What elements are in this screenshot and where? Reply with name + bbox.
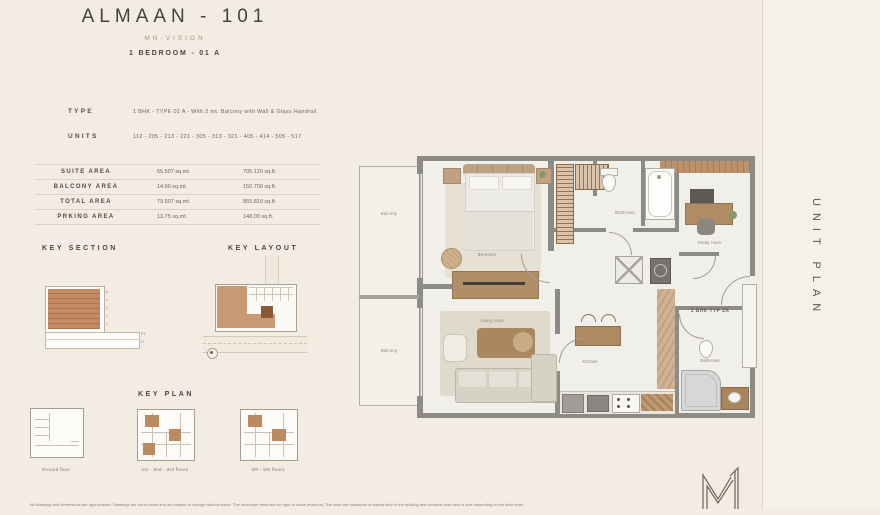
bed-pillow [502, 176, 532, 190]
floor-label: 2 [106, 312, 108, 320]
nightstand-left [443, 168, 461, 184]
key-layout-map [203, 256, 307, 364]
key-plan-heading: KEY PLAN [138, 391, 194, 398]
stove [612, 394, 640, 413]
key-plan-upper-floors [240, 409, 298, 461]
area-row-label: PRKING AREA [35, 214, 137, 220]
key-section-podium [45, 332, 140, 349]
floor-label: 4 [106, 296, 108, 304]
coffee-table-tray [513, 332, 533, 352]
road-centerline [203, 343, 307, 344]
brand-subtitle: MN-VISION [50, 35, 300, 42]
bedroom-label: Bedroom [462, 252, 512, 257]
key-plan-caption: Ground floor [20, 467, 92, 472]
basket [441, 248, 462, 269]
key-section-floor-labels: 5 4 3 2 1 [106, 288, 108, 328]
podium-label: G [141, 340, 144, 344]
area-sqft: 148.00 sq.ft. [243, 214, 320, 220]
table-row: SUITE AREA 65.507 sq.mt. 705.120 sq.ft. [35, 164, 320, 179]
sofa-cushion [489, 371, 516, 387]
fridge [562, 394, 584, 413]
floor-label: 5 [106, 288, 108, 296]
study-room-label: Study room [682, 240, 737, 245]
passage-tiles [657, 289, 675, 389]
key-plan-caption: 4th - 5th floors [228, 467, 308, 472]
balcony-upper-label: Balcony [367, 211, 411, 216]
dining-chair [601, 314, 616, 322]
units-label: UNITS [68, 133, 99, 140]
key-section-floors [48, 289, 100, 329]
units-value: 112 - 205 - 213 - 221 - 305 - 313 - 321 … [133, 134, 353, 140]
floor-label: 1 [106, 320, 108, 328]
plan-name: 1 BEDROOM - 01 A [50, 50, 300, 57]
key-section-podium-line [45, 339, 139, 340]
shower-line [685, 374, 717, 407]
plant [729, 211, 737, 219]
plant [539, 171, 546, 178]
road-horizontal [203, 336, 307, 353]
type-value: 1 BHK - TYPE 01 A - With 2 mt. Balcony w… [133, 109, 353, 115]
area-sqmt: 14.00 sq.mt. [157, 184, 243, 190]
vanity-sink [728, 392, 741, 403]
tv [463, 282, 525, 285]
study-shelf [690, 189, 714, 203]
media-console [452, 271, 539, 299]
area-row-label: TOTAL AREA [35, 199, 137, 205]
header: ALMAAN - 101 MN-VISION 1 BEDROOM - 01 A [50, 6, 300, 57]
table-row: BALCONY AREA 14.00 sq.mt. 150.700 sq.ft. [35, 179, 320, 194]
balcony-upper [359, 166, 421, 298]
table-row: PRKING AREA 13.75 sq.mt. 148.00 sq.ft. [35, 209, 320, 225]
dining-chair [581, 314, 596, 322]
bathtub-drain [657, 175, 661, 179]
key-plan-ground [30, 408, 84, 458]
bathroom-upper-label: Bathroom [602, 210, 648, 215]
sliding-door [419, 308, 420, 396]
bed-duvet [465, 211, 533, 250]
shaft [615, 256, 643, 284]
area-sqmt: 65.507 sq.mt. [157, 169, 243, 175]
area-table: SUITE AREA 65.507 sq.mt. 705.120 sq.ft. … [35, 164, 320, 225]
type-label: TYPE [68, 108, 94, 115]
key-plan-mid-floors [137, 409, 195, 461]
unit-grid [249, 287, 293, 301]
podium-label: P1 [141, 332, 145, 336]
stove-burner [617, 398, 620, 401]
wardrobe-vertical [556, 164, 574, 244]
washing-machine-door [654, 264, 667, 277]
living-room-label: Living room [462, 318, 522, 323]
area-sqft: 705.120 sq.ft. [243, 169, 320, 175]
unit-plan-vertical-label: UNIT PLAN [810, 198, 822, 318]
sliding-door [419, 174, 420, 278]
desk-chair [697, 219, 715, 235]
area-sqft: 150.700 sq.ft. [243, 184, 320, 190]
key-layout-heading: KEY LAYOUT [228, 245, 298, 252]
brochure-page: ALMAAN - 101 MN-VISION 1 BEDROOM - 01 A … [0, 0, 880, 510]
floor-label: 3 [106, 304, 108, 312]
sliding-door [422, 174, 423, 278]
page-title: ALMAAN - 101 [50, 6, 300, 28]
area-sqmt: 13.75 sq.mt. [157, 214, 243, 220]
kitchen-tiles [641, 394, 673, 411]
sofa-chaise [531, 354, 557, 402]
highlighted-unit [261, 306, 273, 318]
bed-pillow [469, 176, 499, 190]
disclaimer: All drawings and dimensions are approxim… [30, 502, 830, 507]
key-section-heading: KEY SECTION [42, 245, 118, 252]
area-row-label: BALCONY AREA [35, 184, 137, 190]
sofa-cushion [459, 371, 486, 387]
key-plan-caption: 1st - 2nd - 3rd floors [125, 467, 205, 472]
unit-floor-plan: Bedroom Living room Balcony Balcony Bath… [357, 156, 755, 418]
sliding-door [422, 308, 423, 396]
area-sqmt: 79.507 sq.mt. [157, 199, 243, 205]
roundabout-center [210, 351, 213, 354]
balcony-lower-label: Balcony [367, 348, 411, 353]
area-sqft: 855.810 sq.ft. [243, 199, 320, 205]
side-panel-divider [762, 0, 763, 510]
bathroom-lower-label: Bathroom [687, 358, 733, 363]
armchair [443, 334, 467, 362]
table-row: TOTAL AREA 79.507 sq.mt. 855.810 sq.ft. [35, 194, 320, 209]
kitchen-sink [587, 395, 609, 412]
road-vertical [265, 256, 279, 285]
area-row-label: SUITE AREA [35, 169, 137, 175]
